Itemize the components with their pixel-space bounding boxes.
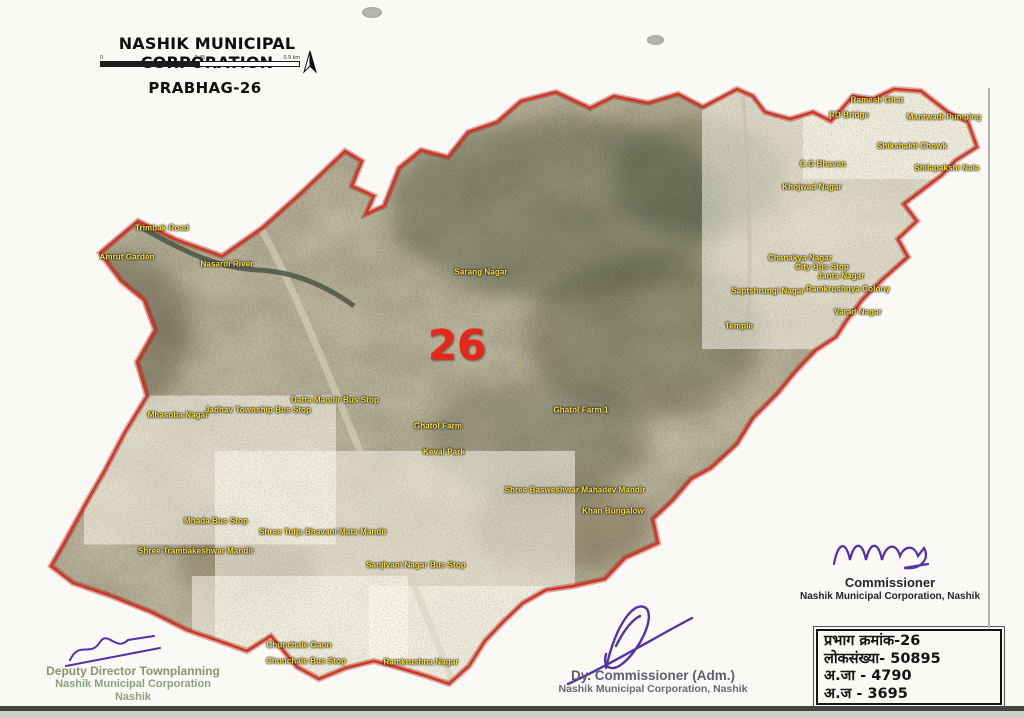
- map-label: Shree Basweshwar Mahadev Mandir: [505, 486, 646, 495]
- map-label: Temple: [725, 322, 753, 331]
- info-box-line: लोकसंख्या- 50895: [824, 651, 994, 669]
- map-label: Ramesh Ghat: [851, 96, 904, 105]
- scanned-map-sheet: NASHIK MUNICIPAL CORPORATION 0 0.45 0.9 …: [0, 0, 1024, 706]
- map-label: Jadhav Township Bus Stop: [205, 406, 311, 415]
- ward-boundary-map: [0, 0, 1024, 718]
- map-label: Trimbak Road: [135, 224, 189, 233]
- dy-commissioner-org: Nashik Municipal Corporation, Nashik: [538, 683, 768, 696]
- signature-block-commissioner: Commissioner Nashik Municipal Corporatio…: [790, 575, 990, 603]
- map-label: Shree Tulja Bhavani Mata Mandir: [259, 528, 387, 537]
- map-label: City Bus Stop: [795, 263, 849, 272]
- map-label: Khojwad Nagar: [782, 183, 842, 192]
- signature-block-dy-commissioner: Dy. Commissioner (Adm.) Nashik Municipal…: [538, 668, 768, 696]
- map-label: Saptshrungi Nagar: [731, 287, 804, 296]
- scan-mark: [647, 35, 664, 45]
- map-label: Janta Nagar: [818, 272, 865, 281]
- map-label: Shree Trambakeshwar Mandir: [138, 547, 254, 556]
- map-label: C.G Bhavan: [800, 160, 846, 169]
- dy-commissioner-title: Dy. Commissioner (Adm.): [538, 668, 768, 683]
- paper-edge-right: [988, 88, 990, 628]
- scan-background-bottom: [0, 711, 1024, 718]
- info-box-line: प्रभाग क्रमांक-26: [824, 633, 994, 651]
- signature-block-deputy-director: Deputy Director Townplanning Nashik Muni…: [28, 665, 238, 704]
- commissioner-title: Commissioner: [790, 575, 990, 590]
- map-label: Chanakya Nagar: [768, 254, 832, 263]
- map-label: Shilapakshi Nale: [914, 164, 979, 173]
- info-box: प्रभाग क्रमांक-26लोकसंख्या- 50895अ.जा - …: [816, 629, 1002, 705]
- map-label: Varad Nagar: [834, 308, 882, 317]
- map-label: Ghatol Farm 1: [553, 406, 608, 415]
- deputy-director-title: Deputy Director Townplanning: [28, 665, 238, 678]
- map-label: Nasardi River: [201, 260, 254, 269]
- map-label: Datta Mandir Bus Stop: [291, 396, 379, 405]
- signature-commissioner: [828, 528, 948, 574]
- map-label: Amrut Garden: [100, 253, 155, 262]
- deputy-director-city: Nashik: [28, 691, 238, 704]
- map-label: Ramkrushnya Colony: [806, 285, 890, 294]
- map-label: Ramkrushna Nagar: [384, 658, 459, 667]
- map-label: Sarang Nagar: [454, 268, 507, 277]
- commissioner-org: Nashik Municipal Corporation, Nashik: [790, 590, 990, 603]
- map-label: Mantwadi Pumping: [907, 113, 982, 122]
- info-box-line: अ.ज - 3695: [824, 686, 994, 704]
- map-label: Chunchale Bus Stop: [266, 657, 346, 666]
- map-label: Khan Bungalow: [582, 507, 644, 516]
- scan-mark: [362, 7, 382, 18]
- map-label: Ghatol Farm: [414, 422, 462, 431]
- map-label: Keval Park: [423, 448, 465, 457]
- deputy-director-org: Nashik Municipal Corporation: [28, 678, 238, 691]
- map-label: Mhasoba Nagar: [148, 411, 209, 420]
- map-label: Shikshakti Chowk: [877, 142, 947, 151]
- map-label: Sanjivani Nagar Bus Stop: [366, 561, 466, 570]
- ward-number: 26: [428, 321, 486, 370]
- info-box-line: अ.जा - 4790: [824, 668, 994, 686]
- map-label: RD Bridge: [829, 111, 869, 120]
- map-label: Mhada Bus Stop: [184, 517, 248, 526]
- map-label: Chunchale Gaon: [267, 641, 332, 650]
